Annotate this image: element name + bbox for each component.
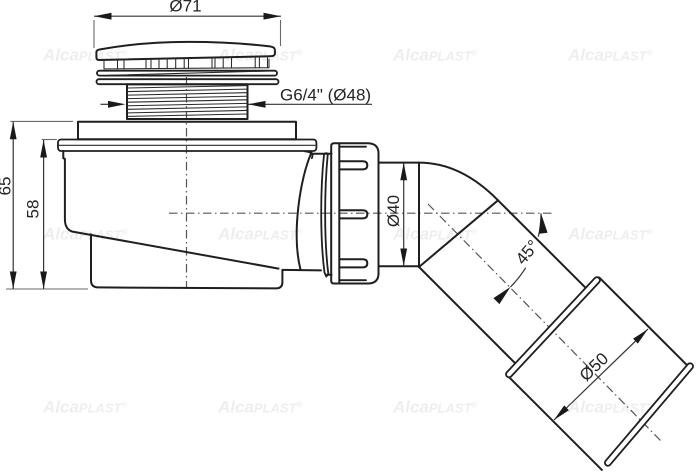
svg-text:65: 65 (0, 177, 15, 196)
svg-text:G6/4" (Ø48): G6/4" (Ø48) (280, 86, 371, 105)
svg-text:AlcaPLAST®: AlcaPLAST® (217, 225, 303, 244)
svg-text:AlcaPLAST®: AlcaPLAST® (42, 46, 128, 65)
svg-text:AlcaPLAST®: AlcaPLAST® (392, 46, 478, 65)
svg-text:AlcaPLAST®: AlcaPLAST® (217, 398, 303, 417)
svg-text:AlcaPLAST®: AlcaPLAST® (42, 398, 128, 417)
svg-text:Ø71: Ø71 (169, 0, 201, 16)
svg-text:AlcaPLAST®: AlcaPLAST® (392, 398, 478, 417)
svg-text:AlcaPLAST®: AlcaPLAST® (567, 46, 653, 65)
svg-text:AlcaPLAST®: AlcaPLAST® (567, 398, 653, 417)
svg-text:AlcaPLAST®: AlcaPLAST® (567, 225, 653, 244)
svg-text:58: 58 (23, 200, 42, 219)
svg-text:Ø40: Ø40 (384, 195, 403, 227)
